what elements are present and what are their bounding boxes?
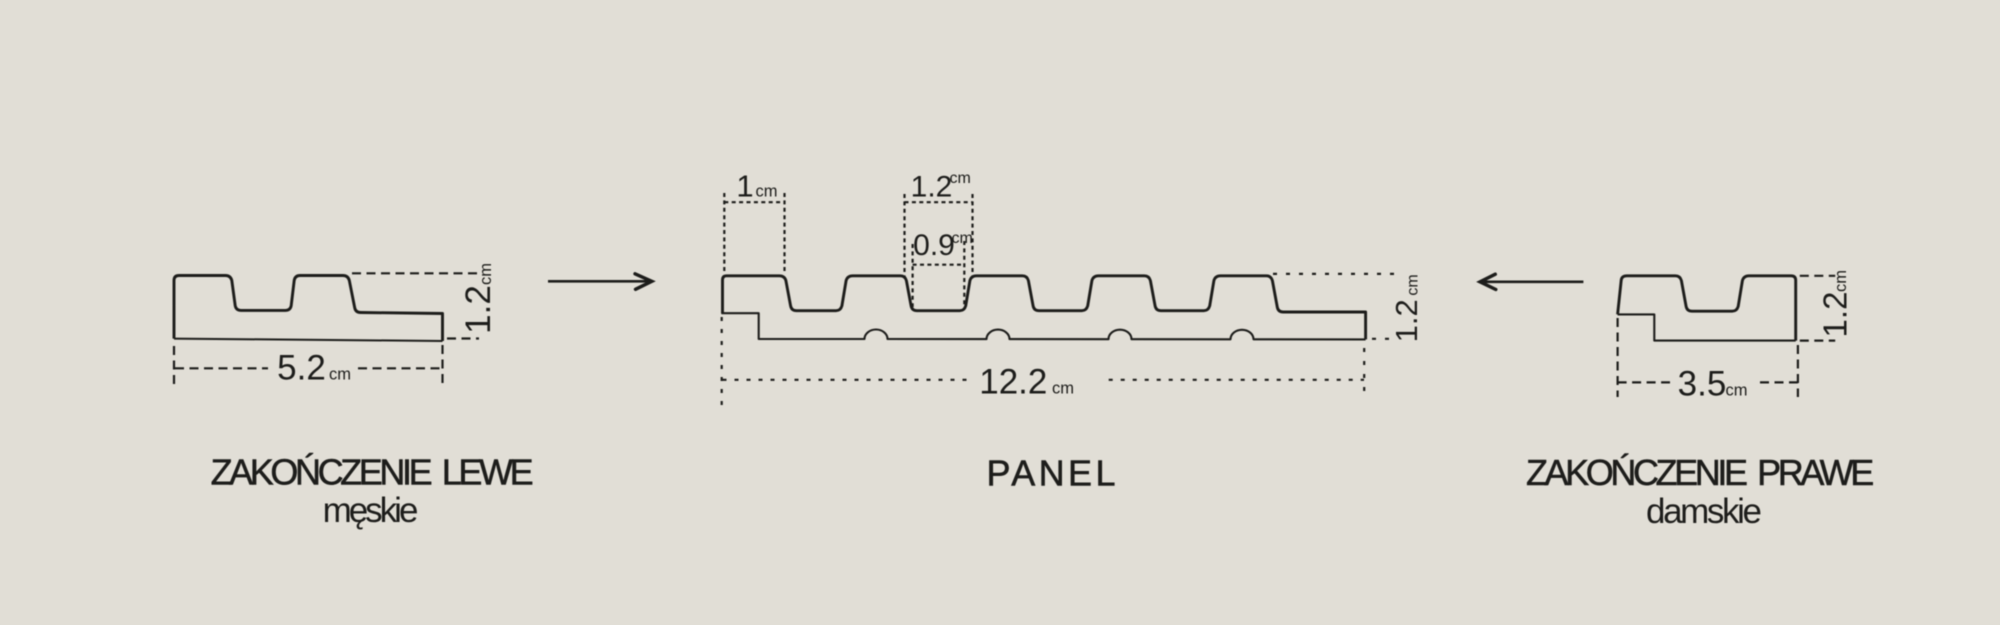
svg-text:3.5: 3.5 (1678, 365, 1727, 404)
svg-text:1.2: 1.2 (1389, 299, 1424, 342)
svg-text:cm: cm (477, 263, 495, 285)
svg-text:PANEL: PANEL (987, 453, 1119, 494)
svg-text:1.2: 1.2 (459, 285, 498, 334)
svg-text:1.2: 1.2 (1817, 292, 1854, 338)
svg-text:damskie: damskie (1646, 492, 1760, 531)
svg-text:cm: cm (1832, 270, 1850, 292)
svg-text:5.2: 5.2 (277, 349, 326, 388)
svg-text:cm: cm (952, 230, 973, 247)
svg-text:cm: cm (1726, 382, 1748, 400)
svg-text:12.2: 12.2 (979, 363, 1047, 402)
svg-text:ZAKOŃCZENIE PRAWE: ZAKOŃCZENIE PRAWE (1526, 452, 1873, 493)
svg-text:cm: cm (756, 183, 778, 201)
svg-text:cm: cm (1052, 380, 1074, 398)
svg-text:cm: cm (1405, 274, 1422, 295)
svg-text:1: 1 (736, 169, 753, 204)
svg-text:męskie: męskie (323, 491, 417, 530)
svg-text:ZAKOŃCZENIE LEWE: ZAKOŃCZENIE LEWE (211, 452, 533, 493)
svg-text:cm: cm (950, 170, 971, 187)
svg-text:0.9: 0.9 (913, 229, 955, 262)
svg-text:cm: cm (329, 366, 351, 384)
svg-text:1.2: 1.2 (911, 171, 953, 204)
